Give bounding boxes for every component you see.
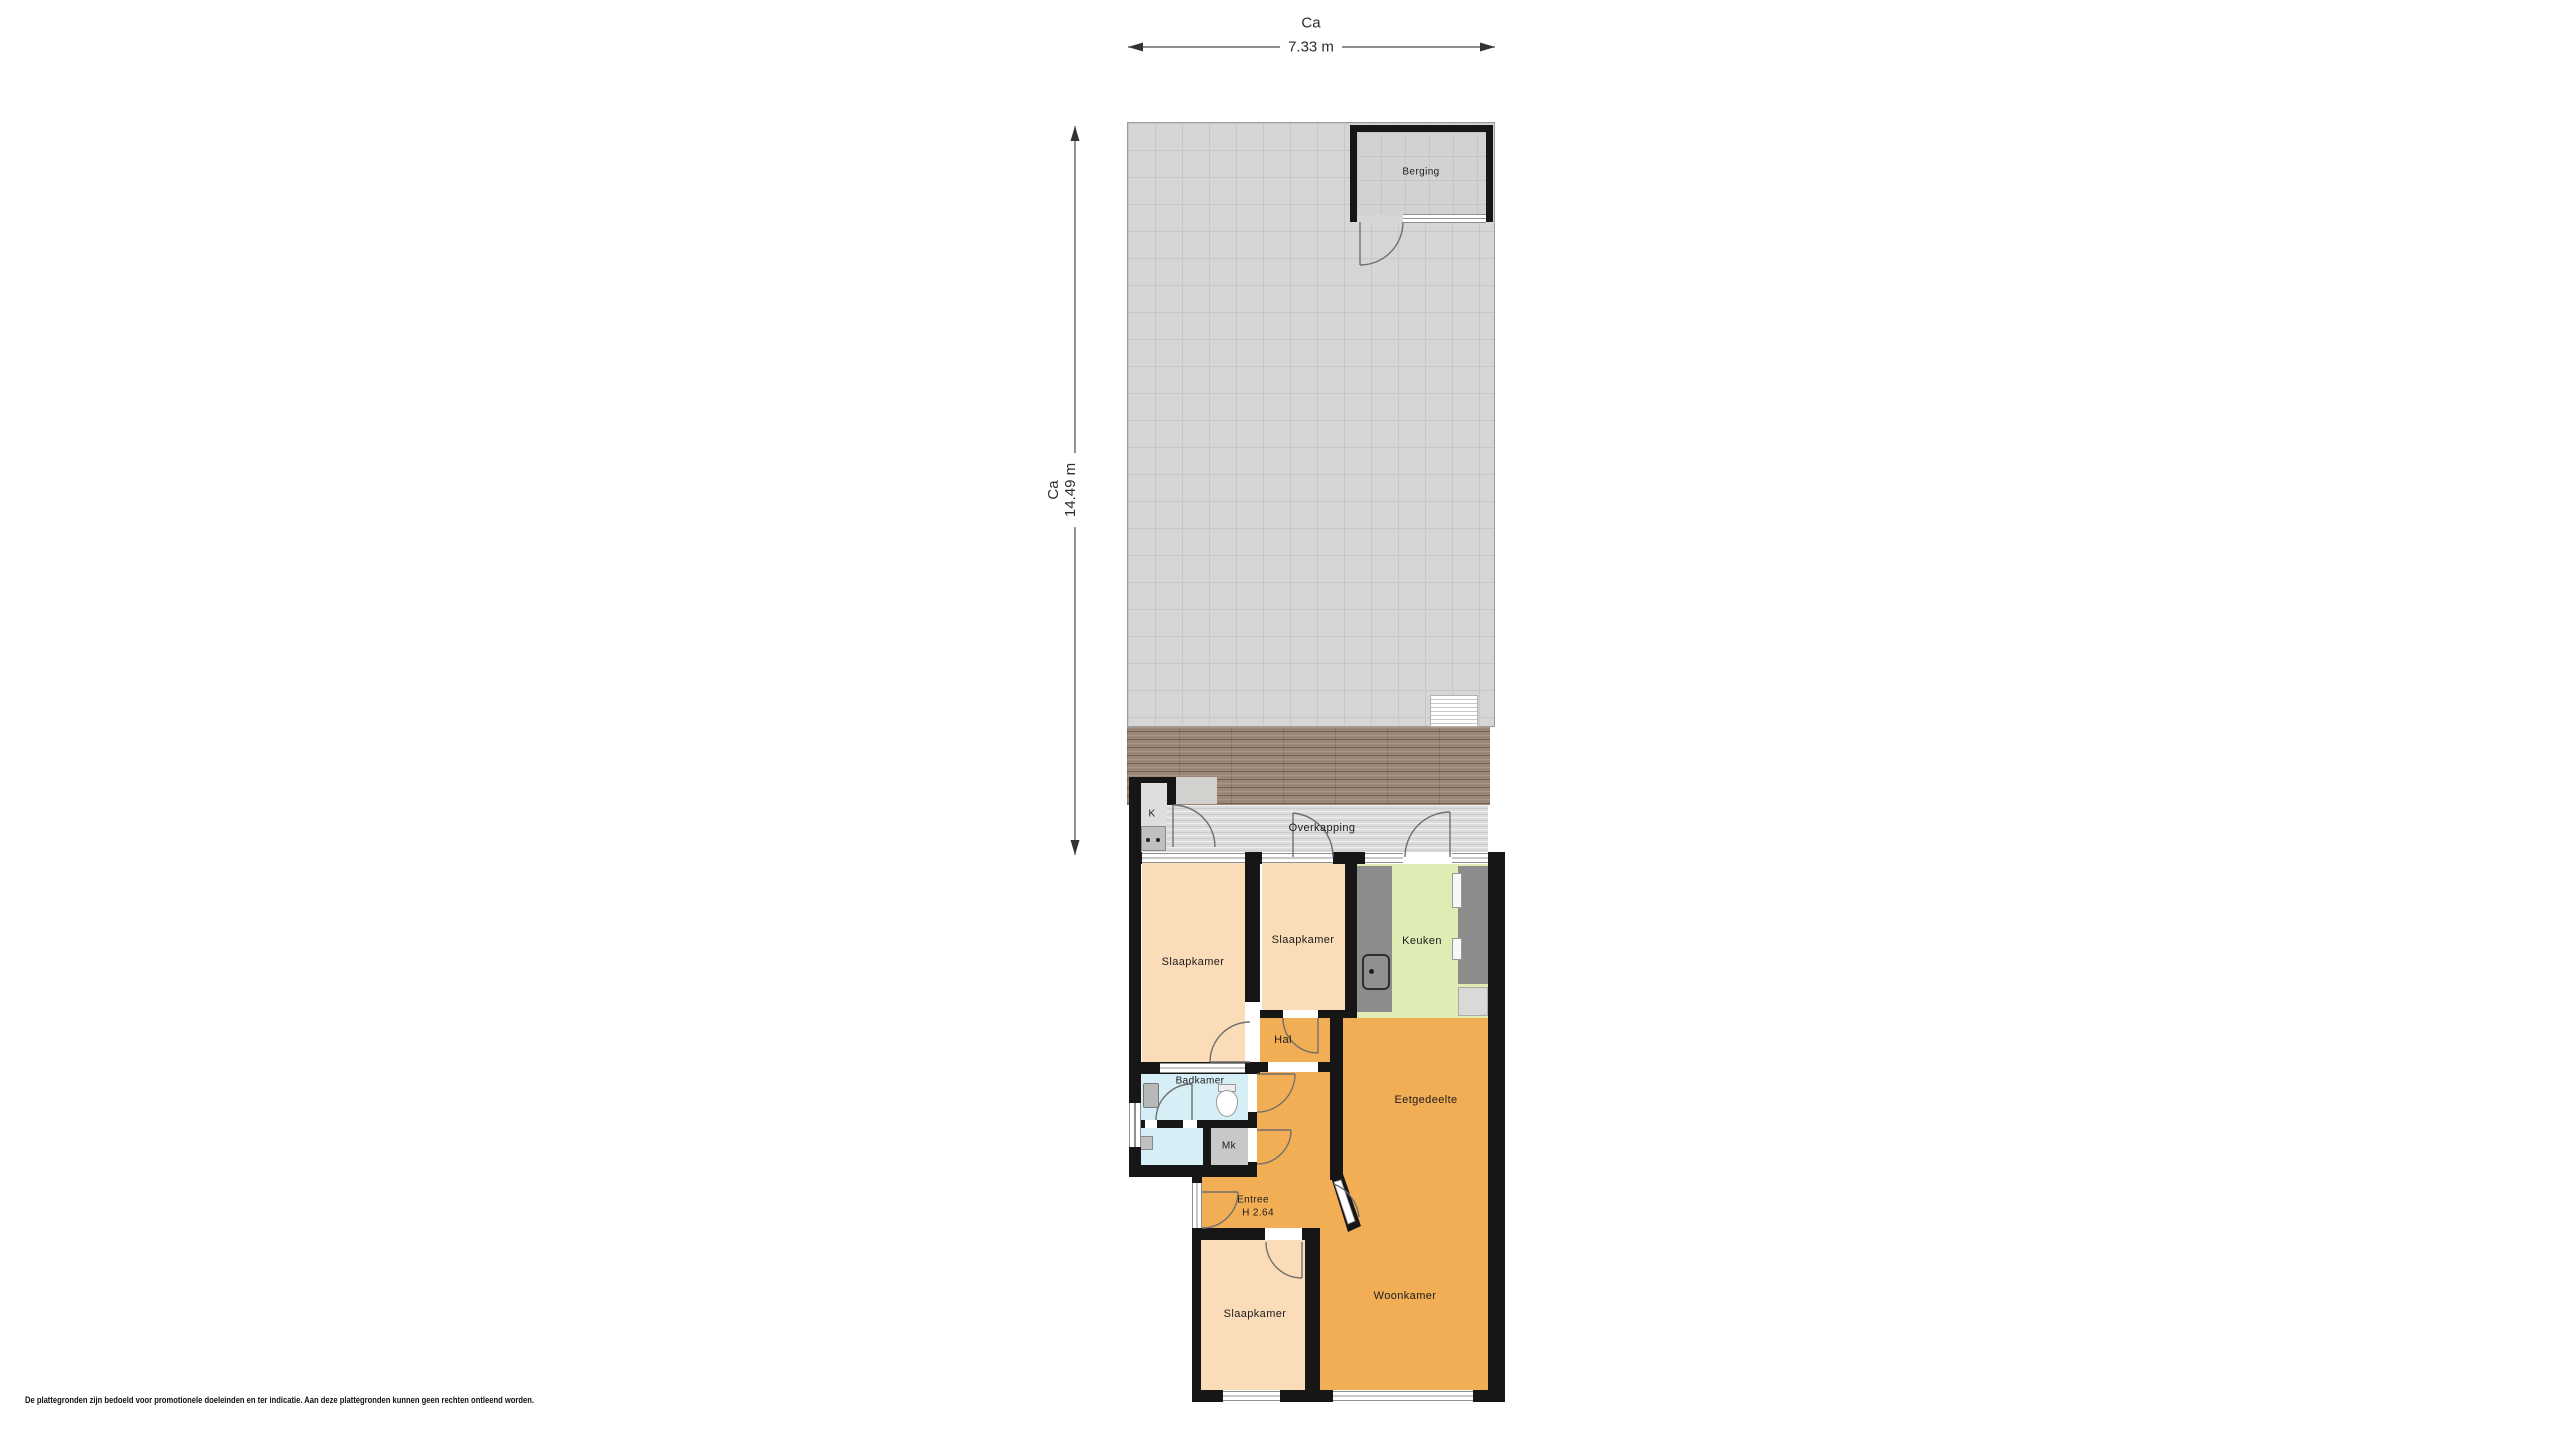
dim-depth-label: Ca 14.49 m <box>1043 453 1082 527</box>
arrow-left-icon <box>1128 43 1143 52</box>
eetgedeelte-label: Eetgedeelte <box>1394 1094 1457 1106</box>
k-closet-label: K <box>1148 809 1155 820</box>
arrow-right-icon <box>1480 43 1495 52</box>
slaapkamer-bottom-label: Slaapkamer <box>1224 1308 1287 1320</box>
door-arc-overkapping-1 <box>1293 813 1333 857</box>
door-arc-k-closet <box>1173 805 1215 847</box>
door-arc-overkapping-2 <box>1405 812 1450 857</box>
door-arc-shower-room <box>1156 1084 1192 1120</box>
floorplan-canvas: Ca 7.33 m Ca 14.49 m Berging Overkapping… <box>0 0 2560 1440</box>
door-arc-berging <box>1360 222 1403 265</box>
dim-depth-prefix: Ca <box>1045 463 1062 517</box>
badkamer-label: Badkamer <box>1176 1076 1225 1087</box>
arrow-up-icon <box>1071 126 1080 141</box>
entree-label: Entree <box>1237 1195 1269 1206</box>
door-arc-front-door <box>1202 1192 1238 1228</box>
slaapkamer-middle-label: Slaapkamer <box>1272 934 1335 946</box>
door-arc-badkamer <box>1257 1074 1295 1112</box>
entree-height-label: H 2.64 <box>1242 1208 1274 1219</box>
meterkast-label: Mk <box>1222 1141 1236 1152</box>
slaapkamer-left-label: Slaapkamer <box>1162 956 1225 968</box>
door-arc-meterkast <box>1257 1130 1291 1164</box>
disclaimer-text: De plattegronden zijn bedoeld voor promo… <box>25 1395 534 1406</box>
door-arc-slaapkamer-bottom <box>1266 1242 1302 1278</box>
dim-depth-value: 14.49 m <box>1062 463 1079 517</box>
door-arc-slaapkamer-left <box>1210 1022 1250 1062</box>
dim-width-prefix: Ca <box>1301 15 1320 32</box>
woonkamer-label: Woonkamer <box>1374 1290 1437 1302</box>
dim-width-value: 7.33 m <box>1280 39 1342 56</box>
arrow-down-icon <box>1071 840 1080 855</box>
plan-linework <box>0 0 2560 1440</box>
overkapping-label: Overkapping <box>1289 822 1356 834</box>
keuken-label: Keuken <box>1402 935 1442 947</box>
hal-label: Hal <box>1274 1034 1292 1046</box>
berging-label: Berging <box>1402 167 1439 178</box>
